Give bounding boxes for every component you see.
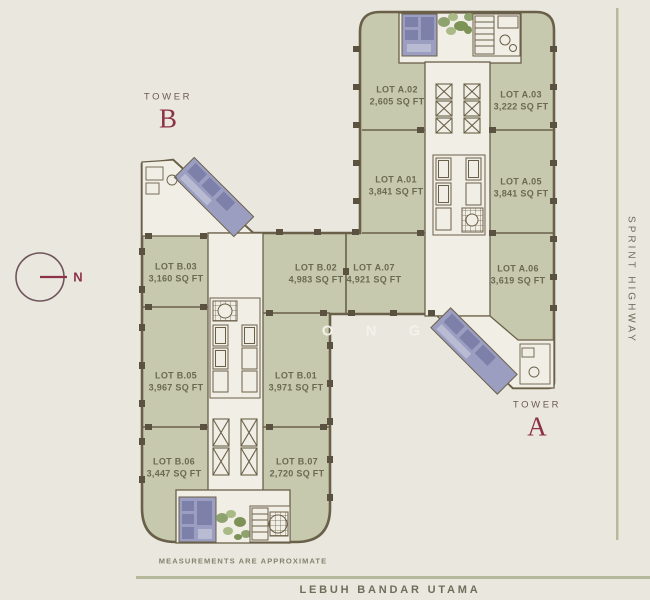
north-compass xyxy=(16,253,67,301)
building-outline xyxy=(142,12,554,542)
sprint-highway-edge-line xyxy=(616,8,619,540)
lebuh-bandar-utama-edge-line xyxy=(136,576,650,579)
floor-plan-page: O N G TOWER B TOWER A N SPRINT HIGHWAY L… xyxy=(0,0,650,600)
tower-a-top-restroom-block xyxy=(402,14,437,56)
tower-a-center-core xyxy=(425,62,490,316)
tower-a-stair-block xyxy=(473,14,520,56)
tower-b-stair-block xyxy=(250,506,290,542)
floor-plan-drawing xyxy=(0,0,650,600)
tower-b-bottom-restroom-block xyxy=(179,497,216,542)
